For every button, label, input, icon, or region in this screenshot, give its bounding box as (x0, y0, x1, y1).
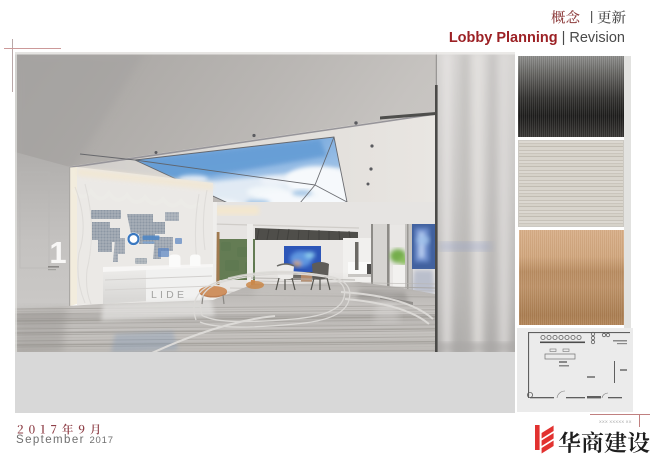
svg-text:LIDE: LIDE (151, 289, 187, 301)
svg-text:1: 1 (49, 235, 66, 270)
